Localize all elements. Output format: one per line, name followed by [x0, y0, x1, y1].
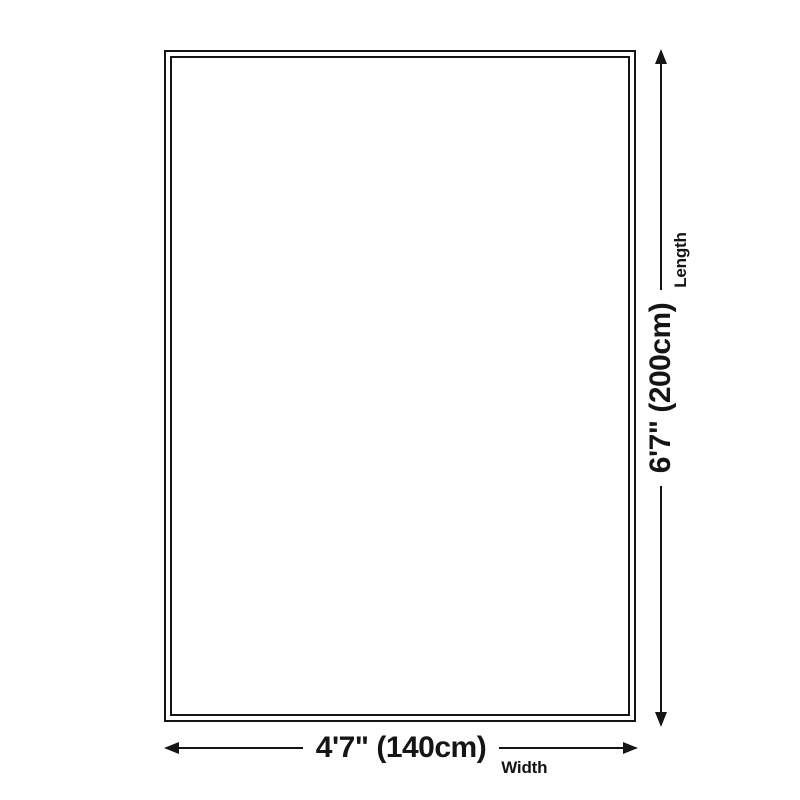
size-diagram: 4'7" (140cm) Width 6'7" (200cm) Length	[0, 0, 800, 800]
width-dimension: 4'7" (140cm) Width	[164, 718, 638, 778]
length-dimension: 6'7" (200cm) Length	[631, 49, 691, 727]
width-value: 4'7" (140cm)	[303, 730, 499, 766]
length-dimension-content: 6'7" (200cm) Length	[631, 49, 691, 727]
product-inner-border	[170, 56, 630, 716]
product-outline	[164, 50, 636, 722]
width-dimension-content: 4'7" (140cm) Width	[164, 718, 638, 778]
length-value: 6'7" (200cm)	[643, 290, 679, 486]
